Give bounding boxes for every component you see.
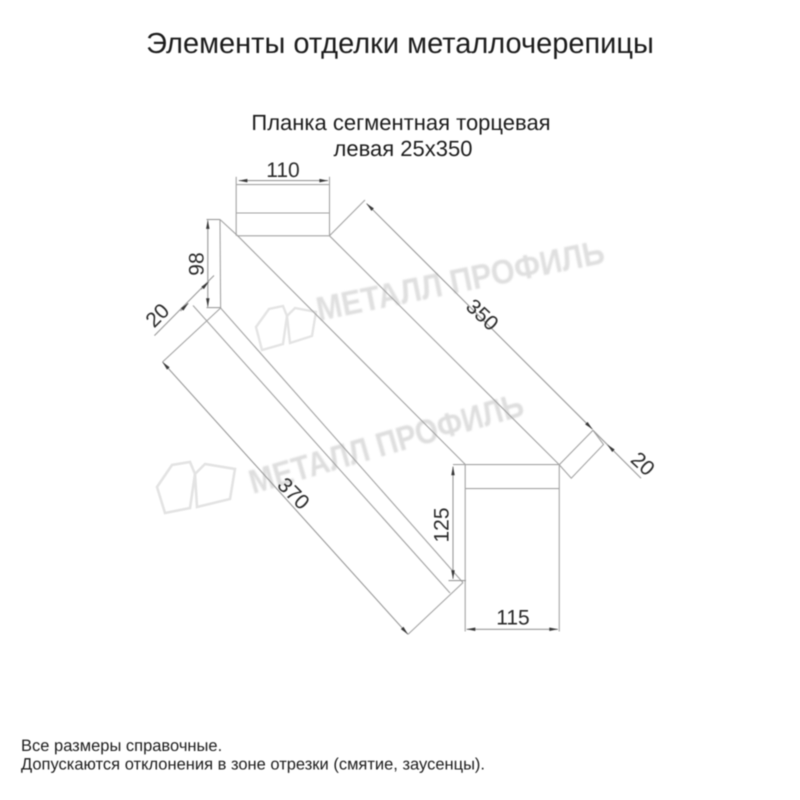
svg-text:левая 25х350: левая 25х350	[334, 136, 473, 161]
svg-text:98: 98	[186, 252, 209, 275]
svg-text:Планка сегментная торцевая: Планка сегментная торцевая	[251, 110, 550, 135]
svg-text:115: 115	[496, 607, 529, 630]
svg-text:МЕТАЛЛ ПРОФИЛЬ: МЕТАЛЛ ПРОФИЛЬ	[313, 233, 608, 329]
svg-text:20: 20	[626, 448, 659, 481]
svg-text:110: 110	[266, 159, 299, 182]
svg-text:Все размеры справочные.: Все размеры справочные.	[21, 737, 222, 755]
svg-text:350: 350	[461, 295, 502, 336]
svg-text:Элементы отделки металлочерепи: Элементы отделки металлочерепицы	[146, 28, 654, 60]
svg-text:Допускаются отклонения в зоне: Допускаются отклонения в зоне отрезки (с…	[21, 756, 485, 774]
svg-text:20: 20	[141, 299, 174, 332]
svg-text:125: 125	[431, 507, 454, 542]
